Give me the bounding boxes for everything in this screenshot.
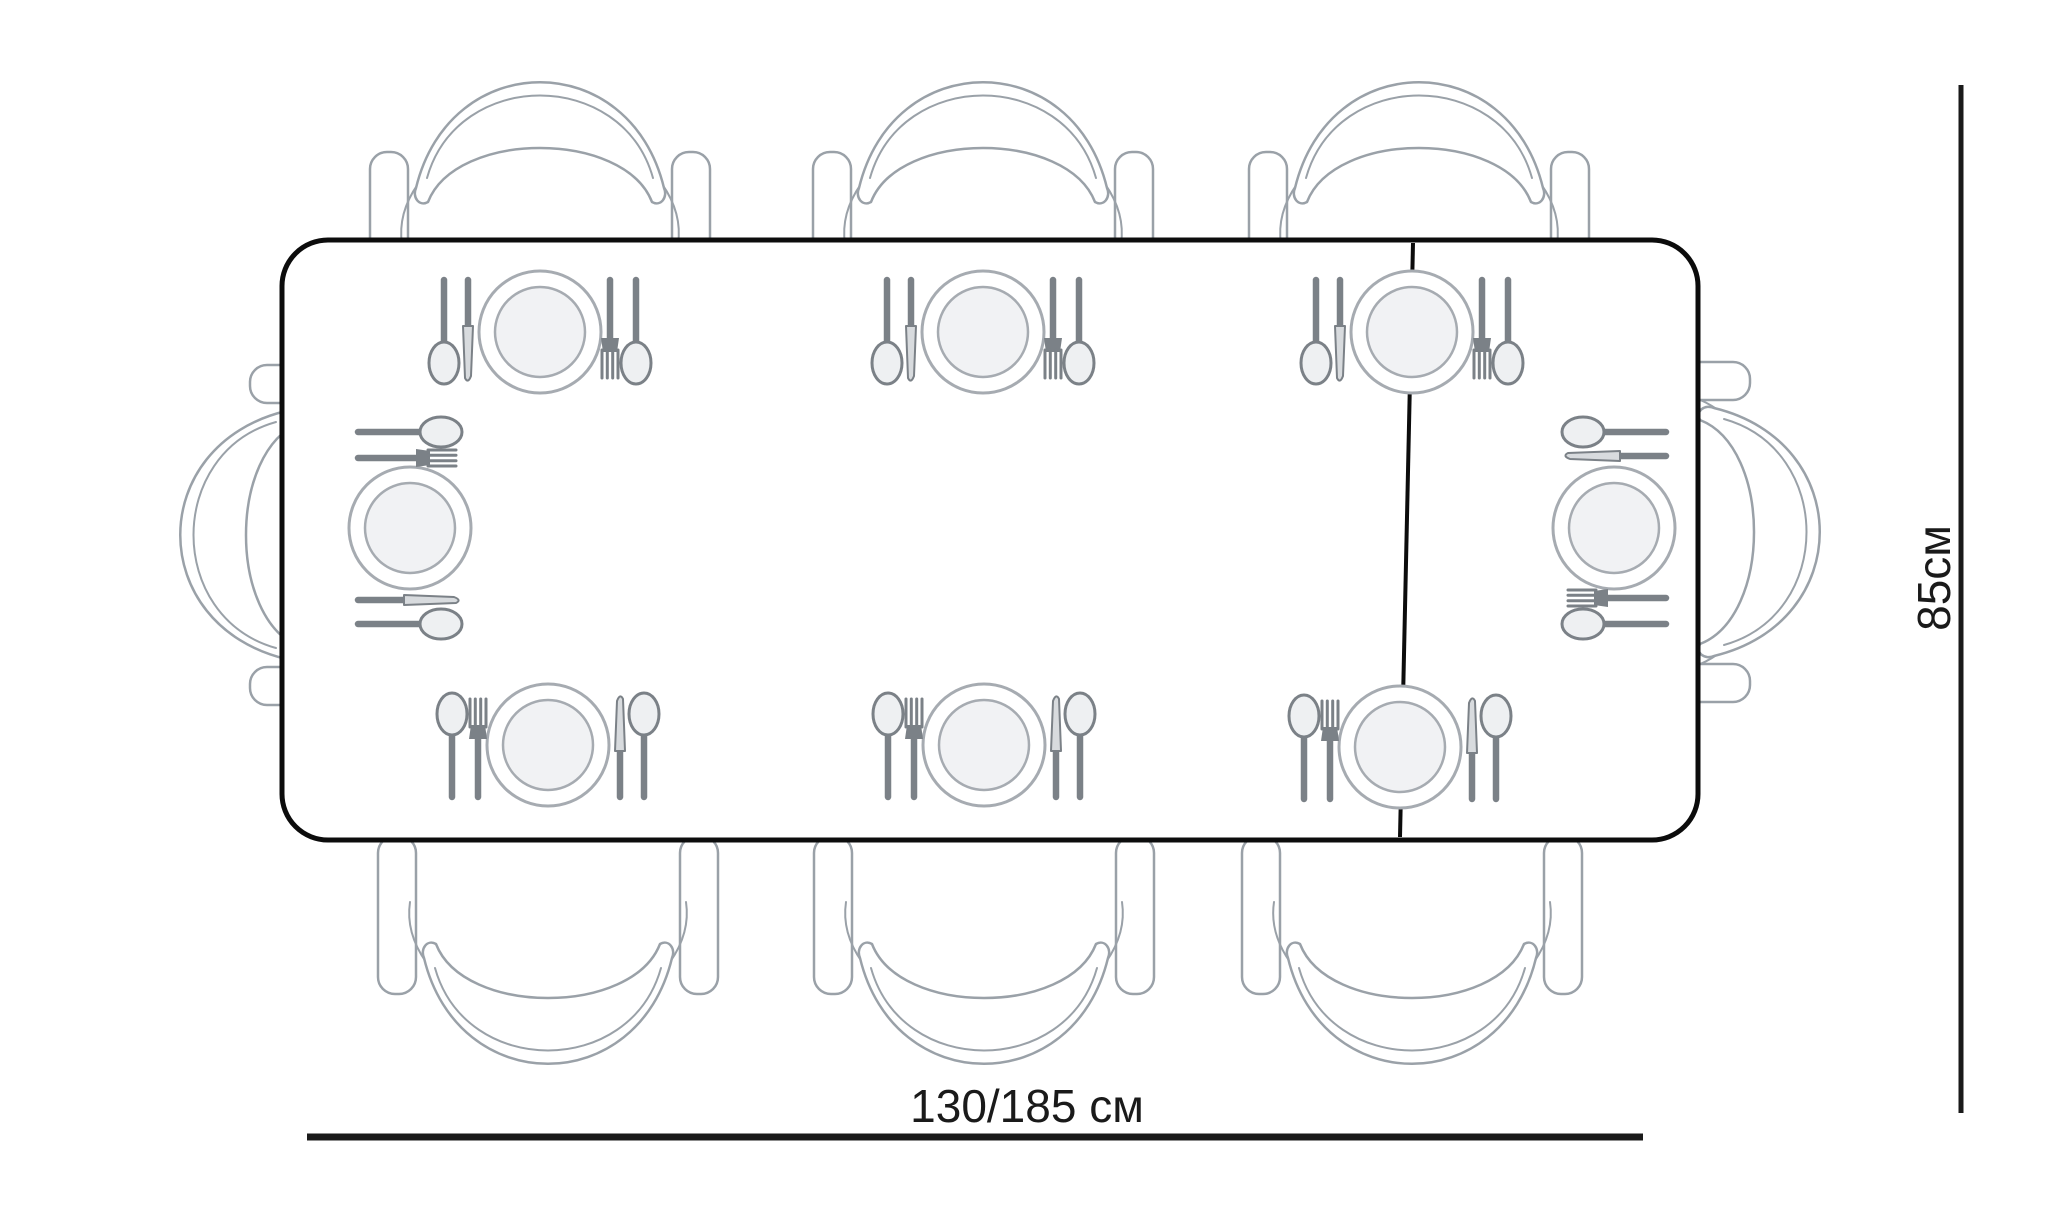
- table-depth-label-group: 85см: [1908, 525, 1960, 631]
- chair-bottom-center: [814, 836, 1154, 1064]
- table-layout-diagram: 130/185 см 85см: [0, 0, 2048, 1207]
- diagram-canvas: 130/185 см 85см: [0, 0, 2048, 1207]
- chair-bottom-left: [378, 836, 718, 1064]
- table-depth-label: 85см: [1908, 525, 1960, 631]
- table-width-label: 130/185 см: [910, 1080, 1144, 1132]
- chair-bottom-right: [1242, 836, 1582, 1064]
